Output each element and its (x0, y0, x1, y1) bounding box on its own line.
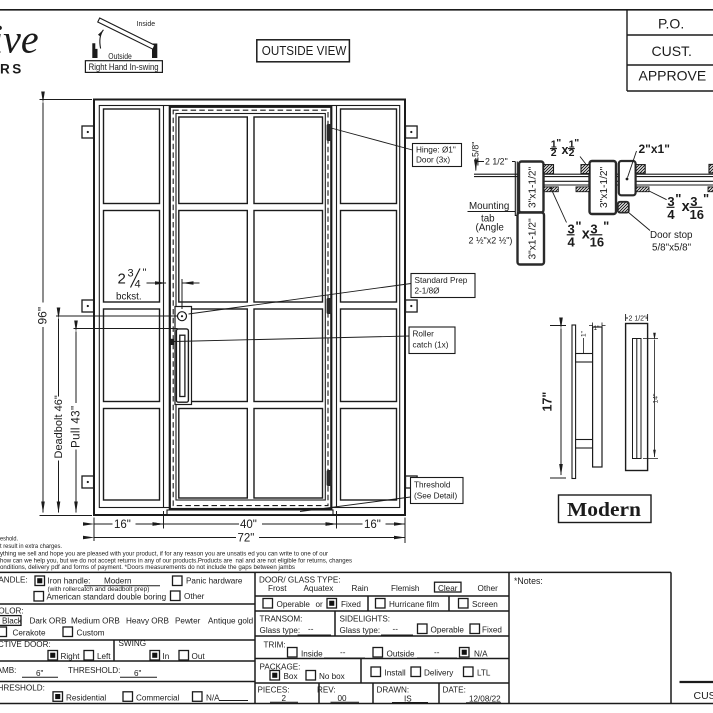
svg-text:--: -- (434, 648, 440, 657)
svg-text:Inside: Inside (137, 19, 156, 28)
svg-text:Door stop: Door stop (650, 230, 693, 241)
svg-text:DOOR/ GLASS TYPE:: DOOR/ GLASS TYPE: (259, 575, 341, 584)
svg-text:(with rollercatch and deadbolt: (with rollercatch and deadbolt prep) (48, 586, 150, 593)
svg-text:x: x (582, 226, 590, 242)
svg-text:DATE:: DATE: (443, 686, 466, 695)
svg-text:Pull 43": Pull 43" (71, 406, 83, 448)
svg-text:SIDELIGHTS:: SIDELIGHTS: (340, 615, 391, 624)
svg-text:2"x1": 2"x1" (639, 142, 670, 156)
svg-text:Roller: Roller (413, 330, 435, 339)
svg-text:Left: Left (97, 652, 111, 661)
svg-text:1": 1" (581, 330, 588, 337)
svg-text:Panic hardware: Panic hardware (186, 576, 243, 585)
svg-text:Door (3x): Door (3x) (416, 156, 450, 165)
svg-text:Custom: Custom (77, 628, 105, 637)
svg-text:2: 2 (282, 694, 287, 703)
svg-text:REV:: REV: (317, 686, 336, 695)
svg-text:4: 4 (667, 207, 675, 222)
svg-text:4: 4 (135, 279, 141, 291)
svg-text:Operable: Operable (431, 626, 465, 635)
svg-text:2 1/2": 2 1/2" (485, 157, 508, 167)
svg-text:Flemish: Flemish (391, 584, 419, 593)
svg-text:Dark ORB: Dark ORB (30, 617, 67, 626)
svg-text:40": 40" (240, 519, 257, 531)
svg-text:THRESHOLD:: THRESHOLD: (0, 684, 45, 693)
svg-text:00: 00 (338, 694, 348, 703)
svg-text:3: 3 (128, 268, 134, 280)
svg-text:14": 14" (653, 393, 660, 404)
svg-text:72": 72" (238, 533, 255, 545)
svg-text:Antique gold: Antique gold (208, 617, 253, 626)
svg-text:Operable: Operable (277, 600, 311, 609)
svg-text:ything we sell and hope you ar: ything we sell and hope you are pleased … (0, 551, 328, 558)
svg-text:COLOR:: COLOR: (0, 607, 24, 616)
svg-text:Glass type:: Glass type: (260, 626, 301, 635)
svg-text:Glass type:: Glass type: (340, 626, 381, 635)
svg-text:SWING: SWING (119, 639, 147, 648)
svg-text:--: -- (393, 625, 399, 634)
svg-text:APPROVE: APPROVE (639, 68, 707, 84)
svg-text:2 ½"x2 ½"): 2 ½"x2 ½") (469, 236, 513, 246)
svg-text:THRESHOLD:: THRESHOLD: (68, 666, 120, 675)
svg-text:Modern: Modern (104, 576, 132, 585)
svg-text:In: In (163, 652, 170, 661)
svg-text:16": 16" (364, 519, 381, 531)
svg-text:Fixed: Fixed (341, 600, 361, 609)
svg-text:Deadbolt 46": Deadbolt 46" (53, 395, 65, 458)
svg-text:Outside: Outside (108, 51, 132, 61)
svg-text:Standard Prep: Standard Prep (415, 276, 468, 285)
svg-text:x: x (682, 199, 690, 215)
svg-text:Pewter: Pewter (175, 617, 201, 626)
svg-text:2 1/2": 2 1/2" (629, 316, 648, 323)
svg-text:Medium ORB: Medium ORB (71, 617, 120, 626)
svg-text:96": 96" (35, 307, 49, 325)
svg-text:Outside: Outside (387, 650, 415, 659)
svg-text:Right Hand In-swing: Right Hand In-swing (89, 61, 159, 72)
svg-text:4: 4 (568, 234, 576, 249)
svg-text:HANDLE:: HANDLE: (0, 575, 28, 584)
svg-text:5/8"x5/8": 5/8"x5/8" (652, 243, 692, 254)
svg-text:Other: Other (184, 592, 205, 601)
svg-text:x: x (562, 143, 569, 157)
svg-text:RS: RS (0, 62, 24, 77)
svg-text:DRAWN:: DRAWN: (377, 686, 410, 695)
svg-text:OUTSIDE VIEW: OUTSIDE VIEW (262, 43, 347, 58)
svg-text:TRANSOM:: TRANSOM: (260, 615, 303, 624)
svg-text:Black: Black (2, 616, 23, 625)
svg-text:P.O.: P.O. (658, 16, 684, 32)
svg-text:CUSTOM: CUSTOM (694, 690, 713, 702)
svg-text:PACKAGE:: PACKAGE: (260, 663, 301, 672)
svg-text:Aquatex: Aquatex (304, 584, 334, 593)
svg-text:eshold.: eshold. (0, 536, 18, 543)
svg-text:CUST.: CUST. (652, 43, 692, 59)
svg-text:t result in extra charges.: t result in extra charges. (0, 543, 62, 550)
svg-text:*Notes:: *Notes: (514, 576, 543, 586)
svg-text:Frost: Frost (268, 584, 287, 593)
svg-text:Fixed: Fixed (482, 626, 502, 635)
svg-text:TRIM:: TRIM: (264, 641, 286, 650)
svg-text:": " (603, 218, 609, 233)
svg-text:6": 6" (36, 669, 44, 678)
svg-text:Mounting: Mounting (469, 201, 509, 212)
svg-text:bckst.: bckst. (116, 292, 142, 303)
svg-text:Inside: Inside (301, 650, 323, 659)
svg-text:12/08/22: 12/08/22 (469, 695, 501, 704)
svg-text:N/A: N/A (206, 693, 220, 702)
svg-text:3"x1-1/2": 3"x1-1/2" (528, 218, 539, 260)
svg-text:2: 2 (118, 271, 126, 288)
svg-text:JAMB:: JAMB: (0, 666, 16, 675)
svg-text:3"x1-1/2": 3"x1-1/2" (528, 166, 539, 208)
svg-text:Heavy ORB: Heavy ORB (126, 617, 169, 626)
svg-text:Install: Install (385, 669, 406, 678)
svg-text:or: or (316, 600, 324, 609)
svg-text:N/A: N/A (474, 650, 488, 659)
svg-text:Modern: Modern (567, 499, 641, 521)
svg-text:(See Detail): (See Detail) (414, 492, 458, 501)
svg-text:--: -- (308, 625, 314, 634)
svg-text:Other: Other (478, 584, 499, 593)
svg-text:catch (1x): catch (1x) (413, 341, 449, 350)
svg-text:2-1/8Ø: 2-1/8Ø (415, 287, 441, 296)
svg-text:16": 16" (114, 519, 131, 531)
svg-text:ive: ive (0, 17, 39, 62)
svg-text:Commercial: Commercial (136, 693, 180, 702)
svg-text:Hinge: Ø1": Hinge: Ø1" (416, 146, 456, 155)
svg-text:Box: Box (284, 672, 298, 681)
svg-text:Iron handle:: Iron handle: (48, 576, 91, 585)
svg-text:Delivery: Delivery (424, 669, 454, 678)
svg-text:5/8": 5/8" (471, 142, 481, 157)
svg-text:": " (675, 191, 681, 206)
svg-text:LTL: LTL (477, 669, 491, 678)
svg-text:--: -- (340, 648, 346, 657)
svg-text:onditions, delivery pdf and fo: onditions, delivery pdf and forms of pay… (0, 564, 295, 571)
svg-text:": " (574, 137, 579, 149)
svg-text:6": 6" (134, 669, 142, 678)
svg-text:Cerakote: Cerakote (13, 628, 46, 637)
svg-text:": " (143, 267, 147, 279)
svg-text:16: 16 (690, 207, 704, 222)
svg-text:ACTIVE DOOR:: ACTIVE DOOR: (0, 640, 51, 649)
svg-text:": " (575, 218, 581, 233)
svg-text:Threshold: Threshold (414, 481, 451, 490)
svg-text:(Angle: (Angle (476, 223, 505, 234)
svg-text:Residential: Residential (66, 693, 106, 702)
svg-text:Screen: Screen (472, 600, 498, 609)
svg-text:Rain: Rain (352, 584, 369, 593)
svg-text:1": 1" (594, 325, 601, 332)
svg-text:17": 17" (541, 392, 555, 412)
svg-text:Out: Out (192, 652, 206, 661)
svg-text:Right: Right (61, 652, 81, 661)
svg-text:3"x1-1/2": 3"x1-1/2" (599, 166, 610, 208)
svg-text:Hurricane film: Hurricane film (389, 600, 439, 609)
svg-text:": " (703, 191, 709, 206)
svg-text:No box: No box (319, 672, 345, 681)
svg-text:American standard double borin: American standard double boring (47, 593, 167, 602)
svg-text:16: 16 (590, 234, 604, 249)
